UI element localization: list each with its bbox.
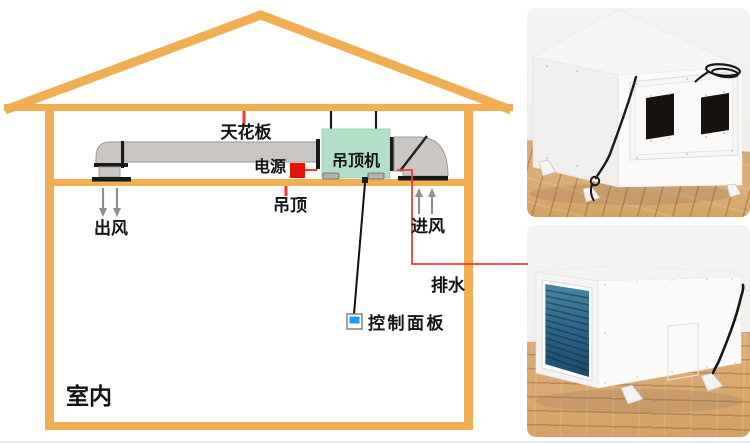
label-power: 电源 — [254, 157, 286, 176]
page-divider — [0, 441, 750, 443]
label-ceiling: 天花板 — [221, 122, 273, 142]
label-unit: 吊顶机 — [332, 151, 380, 170]
roof-outline — [5, 15, 511, 110]
unit-right-face — [598, 277, 741, 388]
outlet-vent-grille — [92, 177, 131, 182]
label-suspended-ceiling: 吊顶 — [273, 196, 307, 215]
unit-shadow — [535, 389, 743, 413]
fan-opening-left — [646, 94, 674, 140]
label-air-inlet: 进风 — [411, 217, 445, 236]
dehumidifier-outlet-side-photo — [527, 8, 750, 217]
label-control-panel: 控制面板 — [368, 313, 446, 333]
unit-foot — [701, 373, 723, 391]
machine-right-flange — [390, 137, 394, 171]
unit-render-outlet-side — [527, 8, 750, 217]
hanger-foot-right — [368, 173, 384, 179]
dehumidifier-coil-side-photo — [527, 225, 750, 437]
label-drain: 排水 — [431, 275, 466, 295]
wire-ceiling-anchor — [362, 177, 368, 183]
fan-opening-right — [701, 93, 729, 135]
left-wall — [45, 111, 54, 430]
right-wall — [464, 111, 473, 430]
control-panel-icon-screen — [350, 317, 360, 324]
hanger-foot-left — [323, 173, 339, 179]
inlet-vent-grille — [398, 176, 448, 181]
air-outlet-arrows — [99, 188, 121, 217]
supply-duct — [124, 142, 317, 162]
left-elbow-neck — [99, 167, 120, 177]
machine-left-flange — [316, 139, 320, 169]
floor-beam — [45, 422, 473, 430]
power-box — [290, 163, 305, 178]
left-duct-elbow — [96, 142, 122, 164]
label-air-outlet: 出风 — [94, 218, 128, 238]
eave-beam — [4, 104, 513, 111]
label-indoor: 室内 — [66, 383, 112, 409]
air-inlet-arrows — [415, 188, 436, 214]
unit-render-coil-side — [527, 225, 750, 437]
installation-diagram: 天花板 吊顶机 电源 吊顶 出风 进风 排水 控制面板 室内 — [0, 0, 530, 444]
duct-end-flange — [121, 141, 124, 168]
product-install-infographic: 天花板 吊顶机 电源 吊顶 出风 进风 排水 控制面板 室内 — [0, 0, 750, 444]
control-panel-wire — [354, 183, 365, 314]
